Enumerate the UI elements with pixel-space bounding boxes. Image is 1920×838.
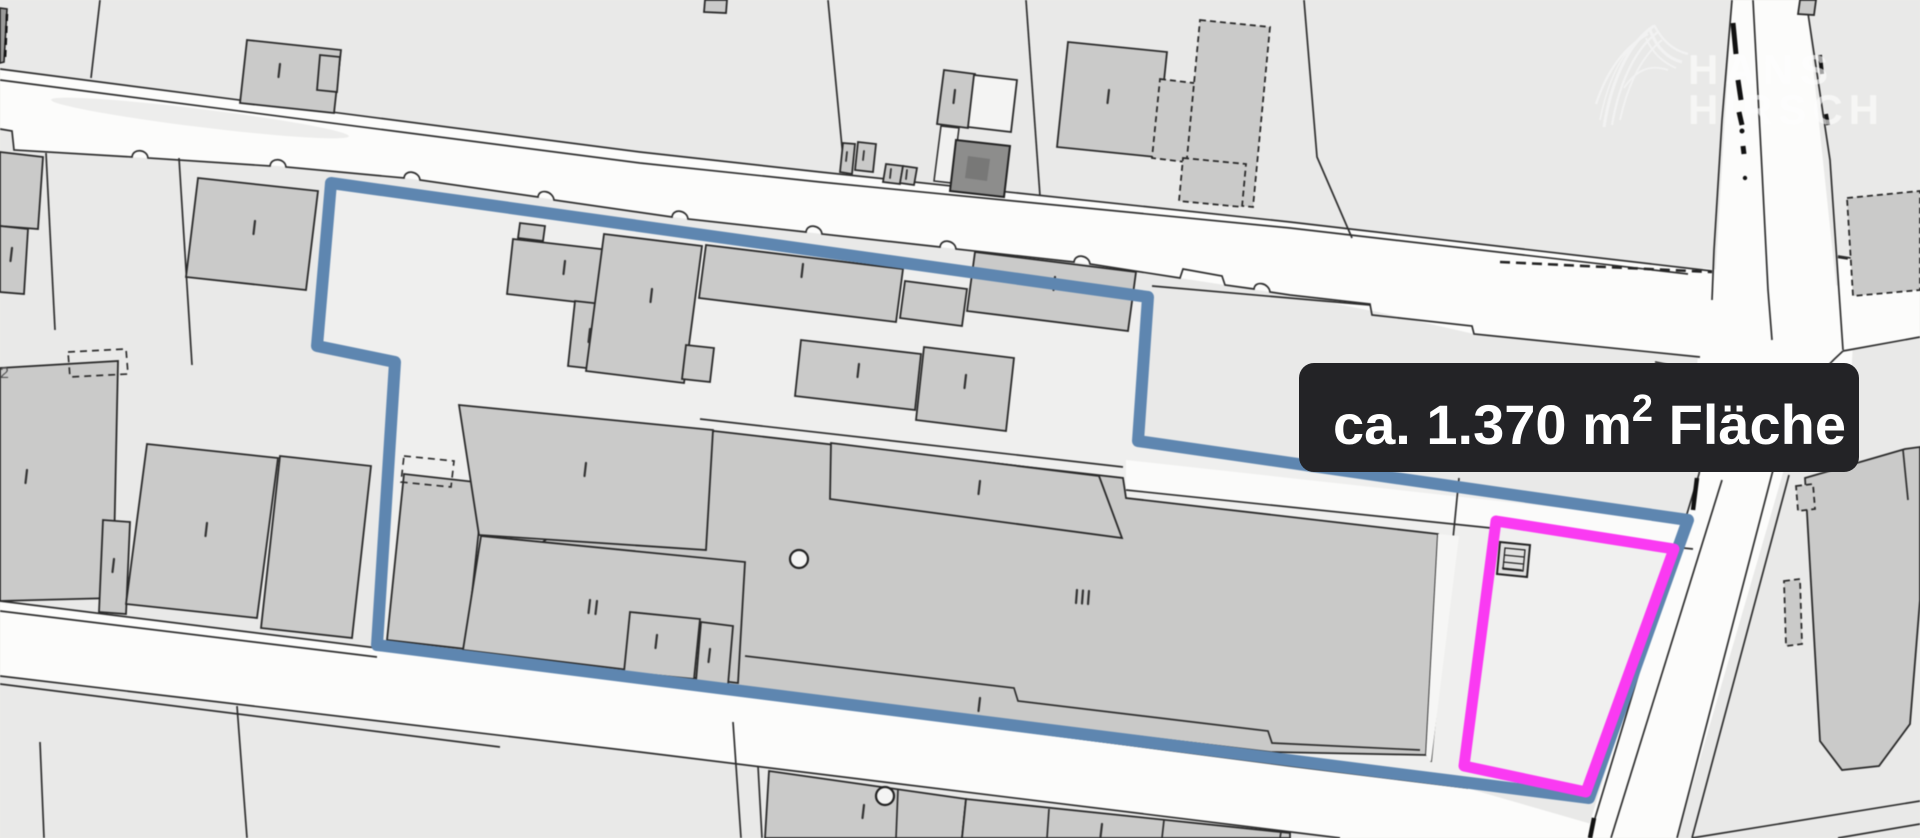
svg-text:HIRSCH: HIRSCH: [1688, 86, 1885, 133]
svg-text:2: 2: [0, 365, 9, 382]
svg-text:ca. 1.370 m2 Fläche: ca. 1.370 m2 Fläche: [1333, 388, 1846, 456]
